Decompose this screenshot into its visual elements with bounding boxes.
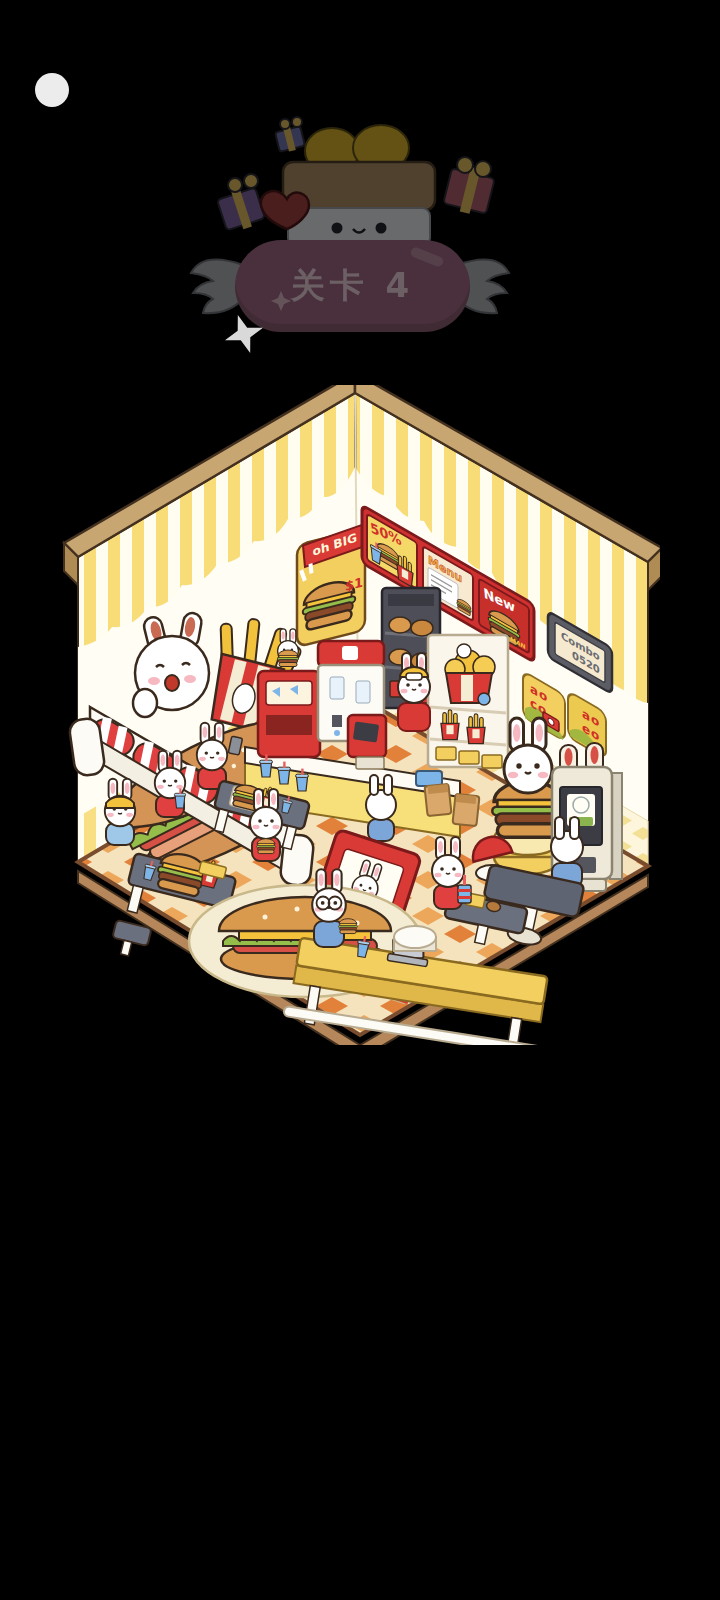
gift-icon — [443, 157, 494, 214]
white-stool[interactable] — [394, 926, 436, 951]
level-banner-pill[interactable]: 关卡 4 — [235, 240, 470, 332]
star-icon — [222, 312, 266, 356]
gift-icon — [217, 174, 265, 230]
game-screen: 关卡 4 — [0, 0, 720, 1600]
white-shelf[interactable] — [428, 635, 508, 768]
level-title: 关卡 4 — [235, 240, 470, 332]
status-dot — [35, 73, 69, 107]
big-poster[interactable]: oh BIG $1 — [297, 524, 365, 647]
gift-icon — [275, 117, 305, 152]
card-reader — [416, 771, 442, 786]
room-scene[interactable]: oh BIG $1 50% Menu — [60, 385, 660, 1045]
